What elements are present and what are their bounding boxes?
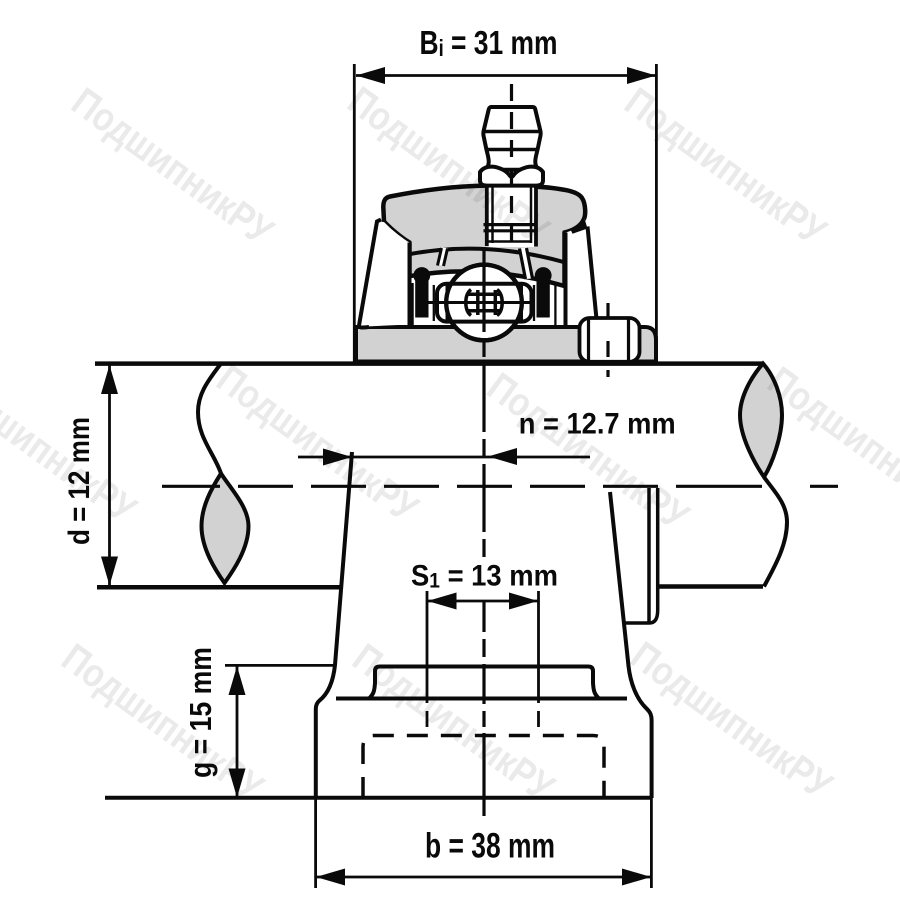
- svg-text:b = 38 mm: b = 38 mm: [425, 827, 555, 866]
